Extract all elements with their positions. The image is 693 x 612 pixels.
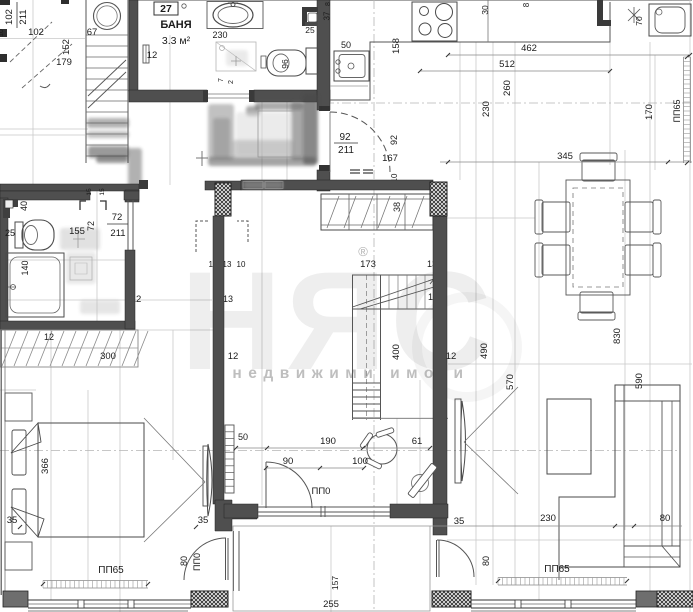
svg-text:72: 72 [112, 212, 123, 223]
svg-text:230: 230 [481, 101, 492, 117]
svg-text:25: 25 [305, 25, 315, 35]
svg-text:100: 100 [352, 456, 368, 467]
svg-text:300: 300 [100, 351, 116, 362]
svg-text:72: 72 [86, 221, 96, 231]
svg-text:152: 152 [61, 39, 72, 55]
svg-text:27: 27 [160, 3, 172, 15]
svg-text:3.3 м²: 3.3 м² [162, 35, 191, 47]
svg-text:512: 512 [499, 59, 515, 70]
svg-text:8: 8 [522, 2, 531, 7]
svg-text:211: 211 [338, 145, 354, 156]
svg-text:167: 167 [382, 153, 398, 164]
svg-text:2: 2 [228, 80, 235, 84]
svg-text:155: 155 [69, 226, 85, 237]
svg-text:61: 61 [412, 436, 423, 447]
svg-text:211: 211 [110, 228, 125, 239]
svg-text:37: 37 [323, 11, 332, 20]
svg-text:67: 67 [87, 27, 98, 38]
svg-text:35: 35 [7, 515, 18, 526]
svg-text:12: 12 [228, 351, 239, 362]
svg-text:230: 230 [212, 30, 227, 40]
svg-text:140: 140 [20, 260, 30, 275]
svg-text:80: 80 [179, 556, 189, 566]
svg-text:40: 40 [19, 201, 29, 211]
svg-text:70: 70 [634, 16, 644, 26]
svg-text:255: 255 [323, 599, 339, 610]
svg-text:92: 92 [389, 135, 399, 145]
svg-text:102: 102 [28, 27, 44, 38]
svg-text:158: 158 [391, 38, 402, 54]
svg-text:190: 190 [320, 436, 336, 447]
svg-text:50: 50 [341, 40, 351, 50]
svg-text:35: 35 [454, 516, 465, 527]
svg-text:БАНЯ: БАНЯ [160, 19, 191, 31]
svg-text:ПП65: ПП65 [544, 564, 570, 575]
svg-text:80: 80 [660, 513, 671, 524]
svg-text:ПП0: ПП0 [312, 486, 331, 497]
svg-text:157: 157 [330, 576, 340, 590]
svg-text:102: 102 [4, 9, 15, 25]
svg-text:25: 25 [5, 228, 15, 238]
svg-text:38: 38 [392, 202, 402, 212]
svg-text:590: 590 [634, 373, 645, 389]
svg-text:173: 173 [360, 259, 376, 270]
svg-text:12: 12 [446, 351, 457, 362]
svg-text:ПП65: ПП65 [98, 565, 124, 576]
svg-text:490: 490 [479, 343, 490, 359]
svg-text:ПП0: ПП0 [192, 553, 202, 571]
svg-text:10: 10 [237, 260, 246, 269]
svg-text:12: 12 [147, 50, 158, 61]
svg-text:35: 35 [198, 515, 209, 526]
svg-text:92: 92 [339, 132, 351, 143]
svg-text:15: 15 [99, 188, 106, 196]
svg-text:80: 80 [481, 556, 491, 566]
svg-text:ПП65: ПП65 [672, 100, 682, 123]
svg-text:10: 10 [0, 29, 5, 37]
svg-text:50: 50 [238, 432, 248, 442]
svg-text:8: 8 [325, 2, 332, 6]
svg-text:®: ® [358, 244, 368, 259]
svg-text:230: 230 [540, 513, 556, 524]
svg-text:30: 30 [480, 5, 490, 15]
svg-text:12: 12 [44, 332, 54, 342]
svg-text:179: 179 [56, 57, 72, 68]
svg-text:570: 570 [505, 374, 516, 390]
svg-text:462: 462 [521, 43, 537, 54]
svg-text:96: 96 [280, 59, 290, 69]
svg-text:366: 366 [40, 458, 51, 474]
svg-text:13: 13 [223, 294, 233, 304]
svg-text:170: 170 [644, 104, 655, 120]
svg-text:400: 400 [391, 344, 402, 360]
svg-text:830: 830 [612, 328, 623, 344]
svg-text:90: 90 [283, 456, 294, 467]
svg-text:260: 260 [502, 80, 513, 96]
svg-text:15: 15 [86, 188, 93, 196]
svg-text:345: 345 [557, 151, 573, 162]
svg-text:211: 211 [18, 9, 29, 24]
svg-text:7: 7 [218, 78, 225, 82]
